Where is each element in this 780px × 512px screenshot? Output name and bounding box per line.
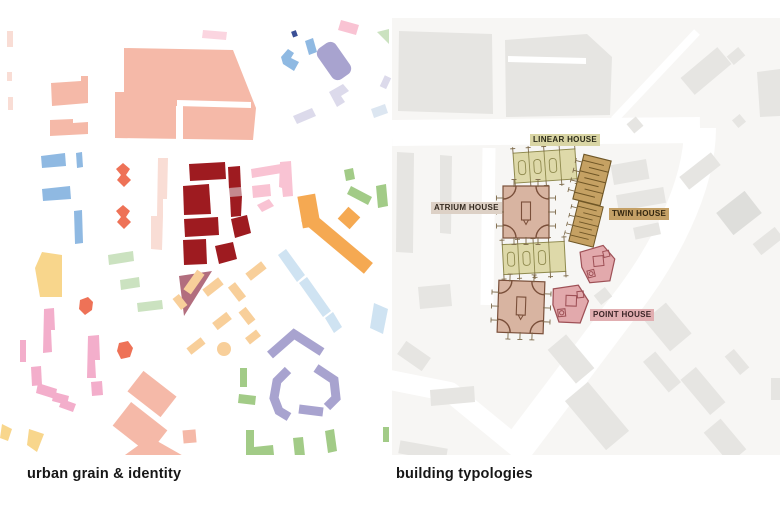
label-linear-house: LINEAR HOUSE [530, 134, 600, 146]
light-blue-band [278, 104, 388, 334]
label-point-house: POINT HOUSE [590, 309, 654, 321]
label-atrium-house: ATRIUM HOUSE [431, 202, 502, 214]
left-map [0, 20, 391, 455]
right-map [390, 18, 780, 455]
diagram-board: LINEAR HOUSE ATRIUM HOUSE TWIN HOUSE POI… [0, 0, 780, 512]
right-panel-caption: building typologies [396, 466, 533, 482]
atrium-house-2 [490, 273, 551, 340]
left-panel-caption: urban grain & identity [27, 466, 181, 482]
diagram-canvas [0, 0, 780, 455]
atrium-house-1 [497, 180, 556, 245]
label-twin-house: TWIN HOUSE [609, 208, 669, 220]
yellow-buildings [0, 252, 62, 452]
